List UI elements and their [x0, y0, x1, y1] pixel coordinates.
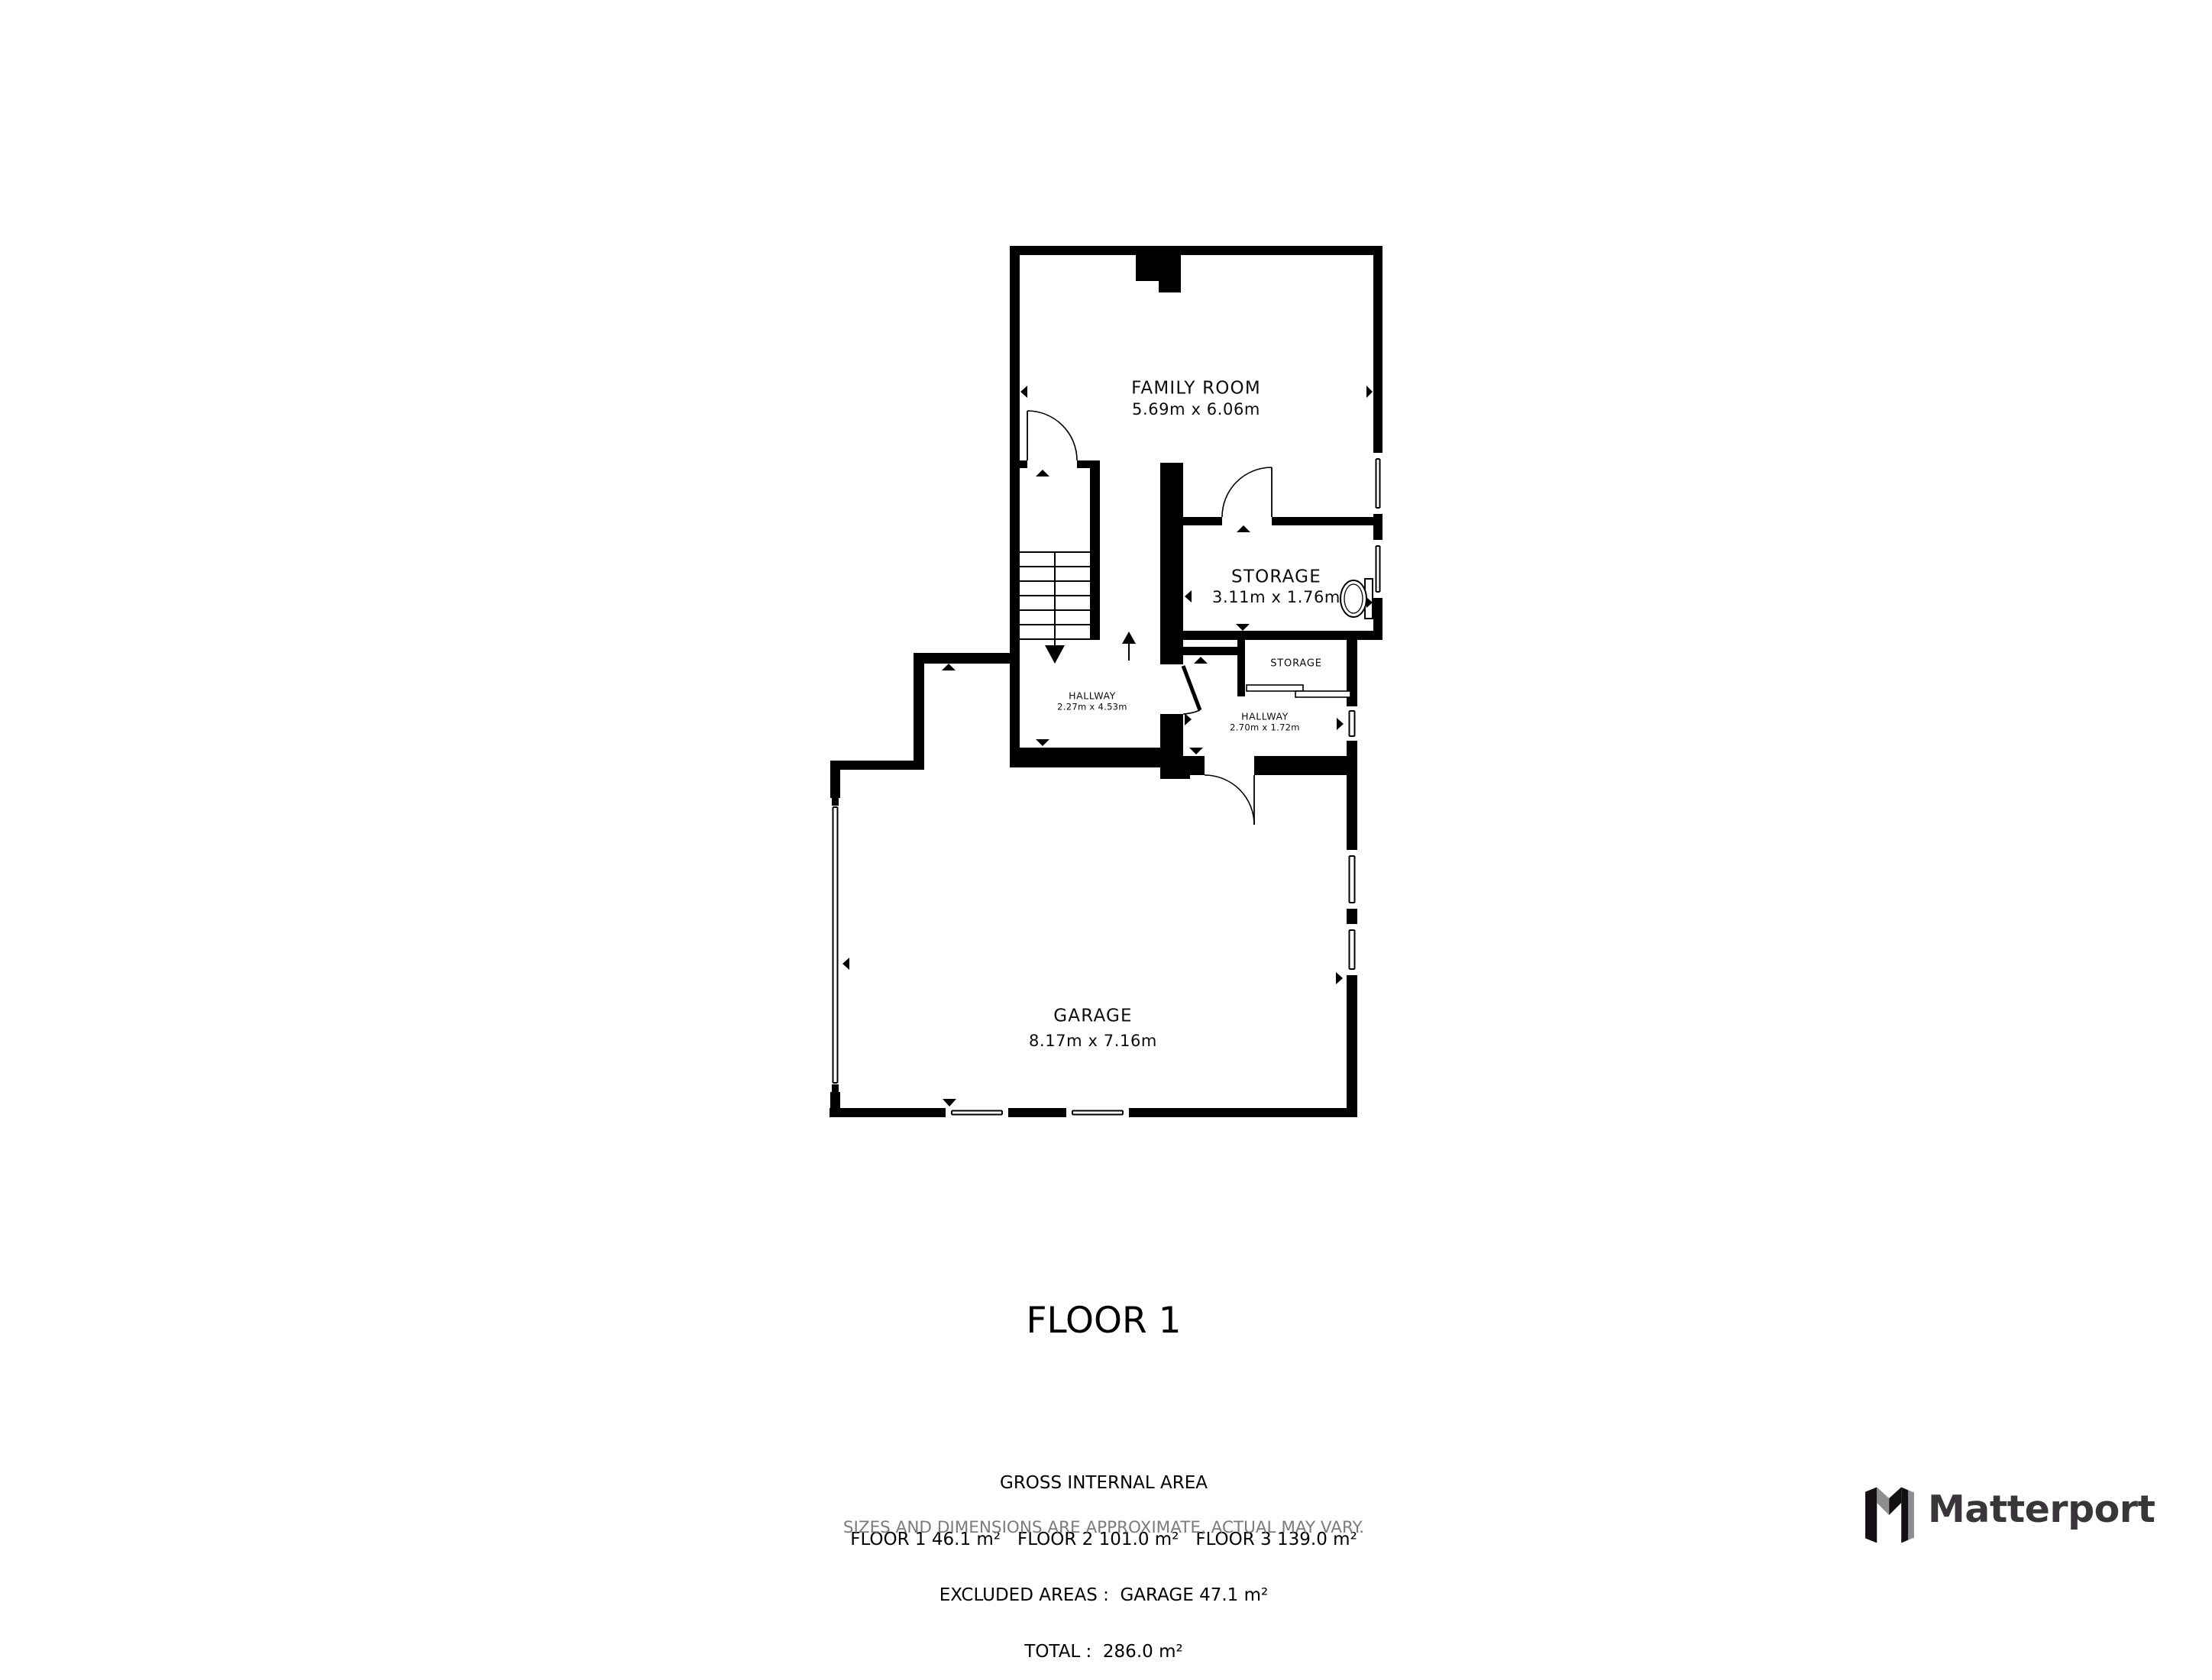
window [1373, 453, 1382, 514]
marker-left [842, 958, 849, 970]
floor-plan: FAMILY ROOM 5.69m x 6.06m STORAGE 3.11m … [794, 214, 1405, 1161]
window [1373, 540, 1382, 598]
marker-down [1236, 624, 1250, 631]
marker-right [1336, 972, 1343, 984]
gross-internal-area-heading: GROSS INTERNAL AREA [850, 1474, 1357, 1493]
marker-down [1036, 739, 1049, 746]
window [1347, 706, 1357, 741]
marker-up [1237, 525, 1250, 532]
staircase [1020, 552, 1136, 664]
window [1347, 924, 1357, 975]
matterport-m-icon [1861, 1486, 1919, 1544]
door-swing [1027, 411, 1077, 468]
stairs-down-arrow-head [1045, 645, 1065, 664]
sliding-door [1247, 685, 1350, 697]
walls [829, 246, 1382, 1117]
door-swing [1205, 756, 1254, 825]
floor-title: FLOOR 1 [1026, 1300, 1181, 1342]
marker-right [1337, 718, 1344, 730]
window [1347, 850, 1357, 909]
marker-up [1036, 470, 1049, 477]
window [830, 798, 840, 1092]
door-swing [1222, 467, 1272, 525]
area-summary: GROSS INTERNAL AREA FLOOR 1 46.1 m² FLOO… [850, 1436, 1357, 1680]
garage-dimensions: 8.17m x 7.16m [1029, 1032, 1157, 1050]
hallway-1-label: HALLWAY [1069, 690, 1116, 702]
chimney-step [1159, 281, 1181, 292]
door-swing [1183, 666, 1200, 714]
matterport-logo: Matterport [1861, 1485, 2212, 1549]
marker-down [1189, 748, 1203, 754]
storage-room-dimensions: 3.11m x 1.76m [1212, 588, 1340, 606]
marker-left [1020, 386, 1027, 398]
disclaimer-text: SIZES AND DIMENSIONS ARE APPROXIMATE, AC… [843, 1518, 1364, 1537]
matterport-wordmark: Matterport [1928, 1488, 2155, 1531]
chimney [1136, 255, 1181, 281]
marker-right [1185, 713, 1192, 725]
marker-down [943, 1099, 956, 1107]
hallway-2-label: HALLWAY [1241, 711, 1289, 722]
marker-up [942, 664, 956, 670]
window [946, 1108, 1008, 1117]
stairs-up-arrow-head [1122, 632, 1136, 644]
marker-up [1194, 657, 1208, 664]
garage-label: GARAGE [1053, 1006, 1133, 1026]
family-room-dimensions: 5.69m x 6.06m [1132, 400, 1260, 418]
floorplan-page: { "plan": { "wall_color": "#000000", "ro… [0, 0, 2212, 1564]
hallway-1-dimensions: 2.27m x 4.53m [1057, 702, 1127, 712]
total-area-line: TOTAL : 286.0 m² [850, 1643, 1357, 1662]
excluded-areas-line: EXCLUDED AREAS : GARAGE 47.1 m² [850, 1586, 1357, 1605]
marker-right [1366, 386, 1373, 398]
marker-left [1185, 590, 1192, 603]
storage-room-label: STORAGE [1231, 567, 1321, 587]
hallway-2-dimensions: 2.70m x 1.72m [1230, 722, 1300, 733]
family-room-label: FAMILY ROOM [1131, 379, 1261, 399]
storage-closet-label: STORAGE [1270, 658, 1321, 670]
window [1066, 1108, 1129, 1117]
